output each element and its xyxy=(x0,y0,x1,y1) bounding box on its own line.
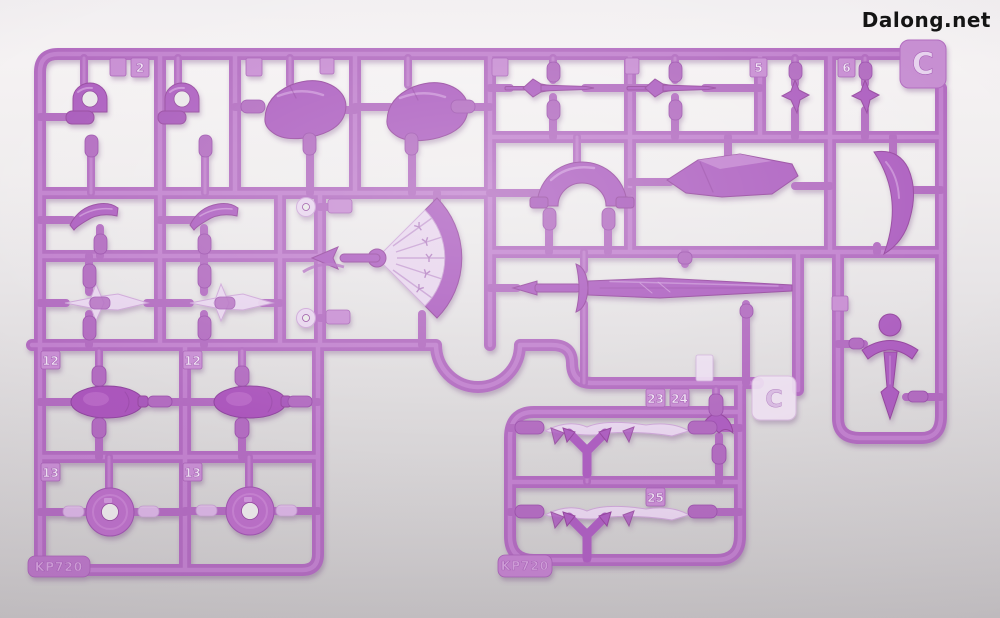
svg-text:KP720: KP720 xyxy=(501,559,549,573)
svg-text:23: 23 xyxy=(647,392,664,406)
sprue-frame: 2 5 6 12 xyxy=(28,40,946,577)
part-joint-1 xyxy=(66,83,107,124)
part-vfin-1 xyxy=(545,422,689,474)
part-clip-2 xyxy=(326,310,350,324)
part-number-tag-blank xyxy=(110,58,126,76)
part-cross-dart-1 xyxy=(65,284,148,321)
part-number-tag: 2 xyxy=(131,58,149,77)
part-number-tag: 13 xyxy=(183,463,202,481)
part-shoulder-shell-1 xyxy=(265,81,346,139)
part-wing-2 xyxy=(190,204,238,231)
runner-photo-svg: 2 5 6 12 xyxy=(0,0,1000,618)
part-number-tag: 13 xyxy=(41,463,60,481)
part-arch xyxy=(530,162,634,208)
svg-text:6: 6 xyxy=(842,61,850,75)
part-dagger xyxy=(862,314,918,419)
part-number-tag-blank xyxy=(492,58,508,76)
part-number-tag: 6 xyxy=(838,58,855,77)
part-ring-1 xyxy=(297,198,316,217)
part-disc-2 xyxy=(226,487,274,535)
mold-mark-1: KP720 xyxy=(28,556,90,577)
part-number-tag: 5 xyxy=(750,58,767,77)
part-number-tag-blank xyxy=(246,58,262,76)
part-vfin-2 xyxy=(545,506,689,558)
part-disc-1 xyxy=(86,488,134,536)
part-number-tag: 25 xyxy=(646,488,665,506)
part-number-tag: 23 xyxy=(646,389,665,407)
watermark-text: Dalong.net xyxy=(862,8,991,32)
part-curved-blade xyxy=(874,151,914,254)
part-number-tag-blank xyxy=(696,355,713,381)
part-ring-2 xyxy=(297,309,316,328)
part-number-tag-blank xyxy=(832,296,848,311)
part-wing-1 xyxy=(70,204,118,231)
part-number-tag-blank xyxy=(320,58,334,74)
runner-letter-tab-2: C xyxy=(752,376,796,420)
svg-text:KP720: KP720 xyxy=(35,560,83,574)
svg-text:25: 25 xyxy=(647,491,664,505)
svg-text:24: 24 xyxy=(671,392,688,406)
mold-mark-2: KP720 xyxy=(498,555,552,577)
part-number-tag: 12 xyxy=(183,351,202,369)
sprue-rails xyxy=(32,54,941,570)
runner-letter-tab-1: C xyxy=(900,40,946,88)
part-thorn-1 xyxy=(782,80,809,113)
svg-text:12: 12 xyxy=(42,354,59,368)
svg-text:12: 12 xyxy=(184,354,201,368)
part-pod-2 xyxy=(214,386,291,418)
part-number-tag: 12 xyxy=(41,351,60,369)
part-clip-1 xyxy=(328,199,352,213)
part-number-tag: 24 xyxy=(670,389,689,407)
part-folding-fan xyxy=(368,198,462,318)
svg-text:5: 5 xyxy=(754,61,762,75)
svg-text:13: 13 xyxy=(42,466,59,480)
svg-text:2: 2 xyxy=(136,61,144,75)
part-pod-1 xyxy=(71,386,148,418)
svg-text:C: C xyxy=(912,47,934,82)
part-thorn-2 xyxy=(852,80,879,113)
part-number-tag-blank xyxy=(625,58,639,74)
svg-text:C: C xyxy=(765,385,783,413)
part-armor-wedge xyxy=(667,154,798,197)
photo-of-model-kit-runner: 2 5 6 12 xyxy=(0,0,1000,618)
svg-text:13: 13 xyxy=(184,466,201,480)
